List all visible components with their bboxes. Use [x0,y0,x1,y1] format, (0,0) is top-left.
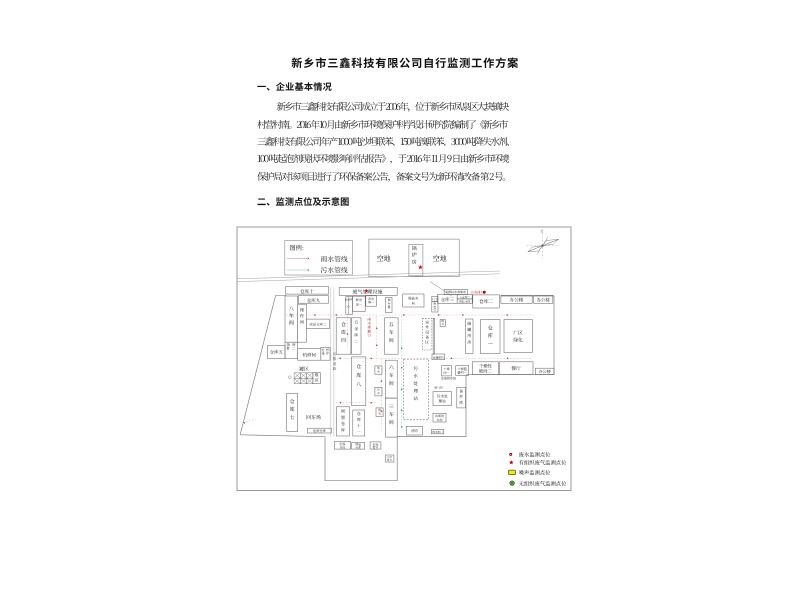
svg-text:仓库三: 仓库三 [441,297,455,303]
svg-text:废气处理设施: 废气处理设施 [352,288,382,295]
svg-text:间: 间 [300,319,304,325]
svg-text:五: 五 [354,319,358,325]
svg-text:件: 件 [286,347,290,352]
svg-text:危废仓库: 危废仓库 [313,428,327,433]
svg-text:办公楼: 办公楼 [538,369,551,375]
svg-text:一: 一 [357,429,361,435]
svg-text:废: 废 [322,351,325,355]
svg-text:废水监测点位: 废水监测点位 [519,450,551,458]
svg-text:库: 库 [354,332,358,338]
svg-text:污水管线: 污水管线 [321,264,348,274]
svg-text:水: 水 [377,391,380,395]
svg-text:有组织废气监测点位: 有组织废气监测点位 [519,459,567,467]
svg-text:塔一: 塔一 [368,300,374,305]
svg-text:仓库九: 仓库九 [307,298,321,304]
svg-text:库: 库 [356,372,361,379]
svg-text:机修间: 机修间 [303,352,317,358]
svg-text:间: 间 [389,419,394,426]
svg-text:件: 件 [459,394,463,400]
svg-text:五金库一: 五金库一 [459,295,470,299]
svg-text:闲: 闲 [341,408,345,414]
svg-text:成品仓库二: 成品仓库二 [309,321,327,326]
svg-text:仓库十: 仓库十 [300,289,314,295]
svg-text:库: 库 [459,400,463,406]
svg-text:五: 五 [389,321,394,328]
svg-text:暂存: 暂存 [373,446,379,450]
svg-text:危废暂存间: 危废暂存间 [441,377,456,381]
svg-text:消防: 消防 [411,428,418,433]
svg-text:备: 备 [459,389,463,395]
svg-text:八: 八 [289,305,295,312]
svg-text:餐厅: 餐厅 [511,365,521,372]
svg-text:污: 污 [413,366,418,372]
svg-text:二: 二 [354,339,358,345]
svg-text:四: 四 [341,337,346,344]
svg-text:处: 处 [413,381,418,387]
svg-text:理站: 理站 [438,399,446,405]
svg-text:初期雨水收集池: 初期雨水收集池 [446,290,466,294]
svg-text:空地: 空地 [433,254,447,264]
svg-text:仓库二: 仓库二 [479,298,494,305]
svg-text:仓库五: 仓库五 [270,349,284,355]
svg-text:罐区: 罐区 [299,366,309,373]
svg-text:排口: 排口 [387,458,393,462]
svg-text:办公楼: 办公楼 [537,297,551,303]
svg-text:水: 水 [377,369,380,373]
svg-text:存: 存 [326,351,329,355]
svg-text:废液暂存: 废液暂存 [433,355,444,359]
svg-text:间: 间 [389,380,394,387]
svg-text:车: 车 [289,312,294,319]
svg-text:仓库: 仓库 [339,445,345,449]
svg-text:车: 车 [389,372,394,379]
svg-text:区: 区 [314,378,318,384]
svg-text:水: 水 [413,373,418,379]
svg-text:厂区: 厂区 [513,330,523,337]
svg-text:仓: 仓 [341,321,346,328]
svg-text:储: 储 [467,321,471,327]
svg-text:水: 水 [441,322,444,326]
svg-text:废气区: 废气区 [434,386,443,390]
svg-text:仓: 仓 [356,363,361,370]
svg-text:区: 区 [425,340,429,346]
svg-text:噪声监测点位: 噪声监测点位 [519,469,551,477]
svg-text:车: 车 [389,411,394,418]
svg-text:雨水排口: 雨水排口 [432,430,443,434]
svg-text:仓: 仓 [290,398,295,405]
svg-text:三: 三 [389,403,394,410]
svg-text:库: 库 [341,329,346,336]
svg-text:八: 八 [356,381,361,388]
svg-text:仓库: 仓库 [355,446,361,450]
svg-text:用: 用 [467,333,471,339]
svg-text:理: 理 [413,388,418,394]
svg-text:装间一: 装间一 [458,370,467,375]
svg-text:雨水管线: 雨水管线 [321,254,348,264]
svg-text:图例:: 图例: [290,243,304,252]
svg-text:能间二: 能间二 [479,369,493,375]
svg-text:塔: 塔 [350,298,353,302]
svg-text:间: 间 [389,337,394,344]
svg-text:北: 北 [540,230,544,235]
svg-text:仓: 仓 [488,324,494,331]
svg-text:无组织废气监测点位: 无组织废气监测点位 [519,479,567,487]
svg-text:七: 七 [290,414,295,421]
svg-text:库: 库 [488,332,493,339]
svg-text:办公楼: 办公楼 [510,297,524,303]
svg-text:水: 水 [378,411,381,415]
svg-text:绿化: 绿化 [513,337,523,344]
svg-text:金: 金 [354,326,358,332]
svg-text:脱盐水间: 脱盐水间 [459,299,470,303]
svg-text:一: 一 [488,340,493,347]
svg-text:车: 车 [389,329,394,336]
svg-text:空地: 空地 [377,254,391,264]
svg-text:罐: 罐 [467,327,471,333]
svg-text:间: 间 [289,319,294,326]
svg-text:室一: 室一 [356,301,362,306]
svg-text:间一: 间一 [443,370,449,375]
svg-text:库: 库 [290,406,295,413]
svg-text:口: 口 [367,334,371,339]
svg-text:路: 路 [333,366,337,372]
svg-text:房: 房 [467,339,471,345]
svg-text:房: 房 [412,258,417,265]
svg-text:站: 站 [413,396,418,402]
svg-text:污水排口: 污水排口 [471,289,485,294]
svg-text:回车场: 回车场 [306,414,321,421]
svg-text:二: 二 [292,347,296,352]
svg-text:水池: 水池 [436,418,442,422]
svg-text:泵: 泵 [388,304,391,309]
